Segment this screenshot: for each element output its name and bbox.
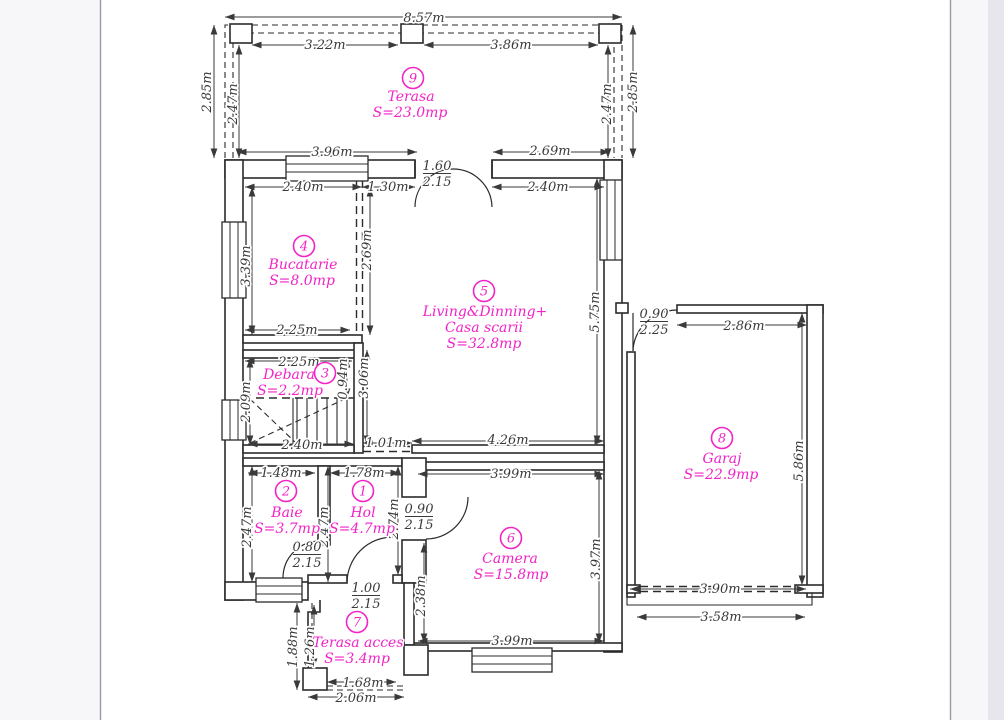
window-baie-south <box>256 578 302 602</box>
room-name2: Casa scarii <box>445 320 523 336</box>
room-number: 5 <box>480 285 488 300</box>
terasa-pillar-right <box>599 24 621 43</box>
door-label-hol-camera: 0.90 2.15 <box>404 502 434 533</box>
room-area: S=4.7mp <box>329 521 395 537</box>
floor-plan-page: 8.57m 3.22m 3.86m 2.85m 2.47m 2.47m 2.85… <box>0 0 1004 720</box>
room-number: 1 <box>359 485 367 500</box>
door-width: 0.90 <box>405 502 434 517</box>
dim-terasa-inner-right: 2.47m <box>600 83 615 125</box>
wall-garaj-north <box>677 305 823 313</box>
room-number: 9 <box>409 72 417 87</box>
room-area: S=32.8mp <box>447 336 522 352</box>
wall-acces-corner <box>404 645 428 675</box>
acces-pillar <box>303 668 327 690</box>
dim-terasa-bottom-right: 2.69m <box>528 144 570 159</box>
dim-baie-top: 1.48m <box>260 466 301 481</box>
dim-kitchen-height: 3.39m <box>239 245 254 286</box>
room-name: Baie <box>270 505 302 521</box>
door-width: 0.90 <box>640 307 669 322</box>
dim-garaj-apron: 3.58m <box>700 610 741 625</box>
dim-debara-right: 0.94m <box>336 358 351 399</box>
room-name: Debara <box>262 367 315 383</box>
dim-acces-bottom-outer: 2.06m <box>334 691 376 706</box>
dim-terasa-total-width: 8.57m <box>403 11 444 26</box>
dim-acces-bottom-inner: 1.68m <box>342 676 383 691</box>
room-name: Living&Dinning+ <box>422 304 548 320</box>
dim-kitchen-top: 2.40m <box>281 180 323 195</box>
dim-stairs-width: 2.40m <box>280 438 322 453</box>
dim-terasa-span-left: 3.22m <box>304 38 345 53</box>
dim-kitchen-bottom: 2.25m <box>275 323 317 338</box>
dim-terasa-bottom-left: 3.96m <box>311 145 352 160</box>
wall-baie-hol-top <box>243 458 402 466</box>
door-height: 2.15 <box>351 597 381 612</box>
room-area: S=23.0mp <box>373 105 448 121</box>
dim-kitchen-opening: 1.30m <box>367 180 408 195</box>
room-area: S=8.0mp <box>269 273 335 289</box>
room-name: Garaj <box>703 451 743 467</box>
dim-stair-hall-height: 3.06m <box>357 357 372 398</box>
dim-living-height: 5.75m <box>588 291 603 332</box>
door-width: 1.60 <box>423 159 452 174</box>
door-label-terasa-acces: 1.00 2.15 <box>351 581 381 612</box>
wall-acces-east <box>404 583 414 645</box>
door-label-baie: 0.80 2.15 <box>292 540 322 571</box>
room-name: Terasa acces <box>312 635 403 651</box>
wall-top-right <box>492 160 622 178</box>
dim-living-bottom: 4.26m <box>486 433 528 448</box>
door-height: 2.15 <box>422 175 452 190</box>
dim-camera-right: 3.97m <box>589 538 604 579</box>
room-number: 6 <box>507 532 515 547</box>
terasa-pillar-middle <box>401 24 423 43</box>
room-name: Terasa <box>387 89 434 105</box>
terasa-pillar-left <box>230 24 252 43</box>
dim-terasa-inner-left: 2.47m <box>226 83 241 125</box>
door-label-terasa-living: 1.60 2.15 <box>422 159 452 190</box>
window-camera-south <box>472 648 552 672</box>
room-area: S=3.7mp <box>254 521 320 537</box>
room-number: 4 <box>299 240 308 255</box>
wall-hol-camera-upper <box>402 458 426 497</box>
dim-terasa-span-right: 3.86m <box>490 38 531 53</box>
room-number: 8 <box>718 432 726 447</box>
room-area: S=3.4mp <box>324 651 390 667</box>
room-number: 7 <box>353 616 362 631</box>
room-number: 3 <box>321 367 329 382</box>
dim-acces-left-outer: 1.88m <box>286 626 301 667</box>
dim-living-top: 2.40m <box>526 180 568 195</box>
dim-camera-bottom: 3.99m <box>491 634 532 649</box>
dim-kitchen-partition: 2.69m <box>360 229 375 271</box>
room-area: S=22.9mp <box>684 467 759 483</box>
page-edge-band <box>988 0 1004 720</box>
room-area: S=2.2mp <box>257 383 323 399</box>
room-area: S=15.8mp <box>474 567 549 583</box>
door-width: 0.80 <box>293 540 322 555</box>
dim-hol-top: 1.78m <box>343 466 384 481</box>
door-height: 2.15 <box>292 556 322 571</box>
window-living-east <box>600 180 622 260</box>
door-width: 1.00 <box>352 581 381 596</box>
dim-debara-left: 2.09m <box>239 381 254 423</box>
dim-terasa-outer-left: 2.85m <box>200 71 215 113</box>
room-name: Bucatarie <box>268 257 338 273</box>
floor-plan-drawing: 8.57m 3.22m 3.86m 2.85m 2.47m 2.47m 2.85… <box>0 0 1004 720</box>
room-number: 2 <box>281 485 290 500</box>
wall-hol-south-right <box>393 575 402 583</box>
wall-garaj-connector <box>616 303 628 313</box>
dim-baie-left: 2.47m <box>240 506 255 548</box>
dim-camera-left: 2.38m <box>414 575 429 617</box>
dim-stair-opening: 1.01m <box>365 436 406 451</box>
wall-garaj-west <box>627 352 635 597</box>
dim-garaj-top: 2.86m <box>722 319 764 334</box>
dim-garaj-door-width: 3.90m <box>699 582 740 597</box>
room-name: Camera <box>482 551 538 567</box>
room-name: Hol <box>349 505 375 521</box>
door-label-living-garaj: 0.90 2.25 <box>639 307 669 338</box>
dim-camera-top: 3.99m <box>490 467 531 482</box>
wall-garaj-east <box>807 305 823 597</box>
door-height: 2.25 <box>639 323 669 338</box>
dim-terasa-outer-right: 2.85m <box>626 71 641 113</box>
door-height: 2.15 <box>404 518 434 533</box>
dim-garaj-right: 5.86m <box>792 440 807 481</box>
